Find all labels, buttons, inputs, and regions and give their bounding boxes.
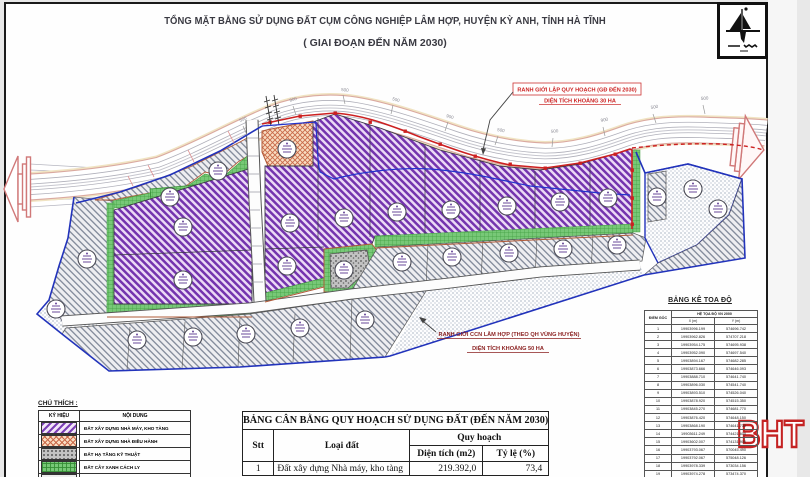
svg-text:900: 900 <box>446 113 455 120</box>
svg-text:500: 500 <box>701 95 709 101</box>
svg-text:500: 500 <box>341 87 349 93</box>
svg-text:500: 500 <box>551 128 559 134</box>
svg-text:RANH GIỚI CCN LÂM HỢP (THEO QH: RANH GIỚI CCN LÂM HỢP (THEO QH VÙNG HUYỆ… <box>439 330 580 338</box>
svg-text:900: 900 <box>600 116 609 123</box>
svg-text:500: 500 <box>392 96 401 103</box>
svg-text:RANH GIỚI LẬP QUY HOẠCH (GĐ ĐẾ: RANH GIỚI LẬP QUY HOẠCH (GĐ ĐẾN 2030) <box>517 86 636 94</box>
svg-text:500: 500 <box>497 127 506 133</box>
svg-text:500: 500 <box>650 104 659 110</box>
svg-text:DIỆN TÍCH KHOẢNG 50 HA: DIỆN TÍCH KHOẢNG 50 HA <box>472 344 544 352</box>
svg-text:DIỆN TÍCH KHOẢNG 30 HA: DIỆN TÍCH KHOẢNG 30 HA <box>544 97 616 105</box>
